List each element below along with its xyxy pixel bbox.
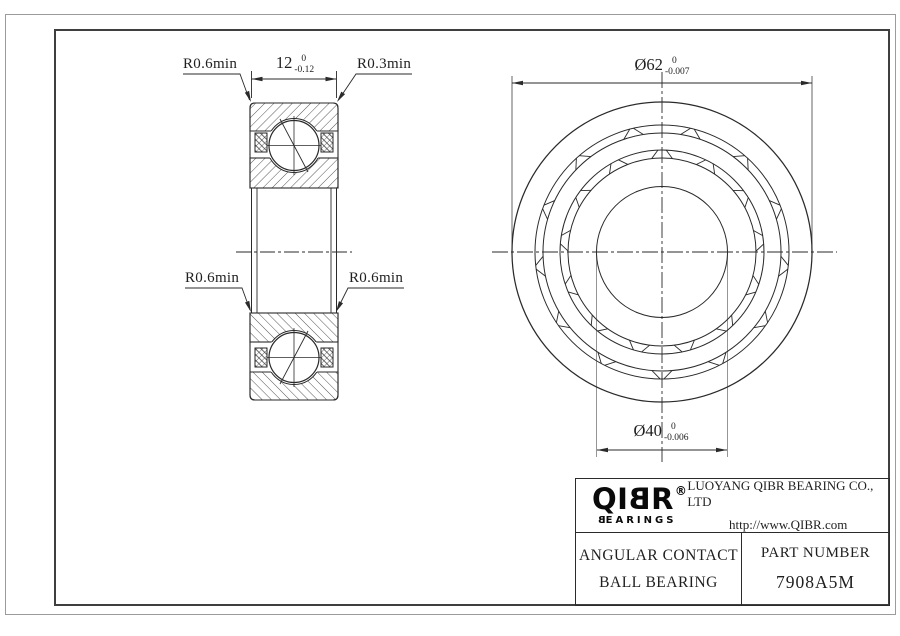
product-name-line2: BALL BEARING <box>599 574 718 592</box>
section-view <box>236 103 352 400</box>
part-number-value: 7908A5M <box>776 572 855 593</box>
title-block-header-row: QIBR® BEARINGS LUOYANG QIBR BEARING CO.,… <box>576 479 889 533</box>
bearing-drawing-sheet: R0.6min R0.3min R0.6min R0.6min 12 0 -0.… <box>0 0 900 636</box>
title-block: QIBR® BEARINGS LUOYANG QIBR BEARING CO.,… <box>575 478 890 606</box>
dim-text-width: 12 0 -0.12 <box>276 53 314 77</box>
qibr-logo: QIBR® BEARINGS <box>592 485 687 526</box>
dim-width-tolerance: 0 -0.12 <box>294 54 314 77</box>
cage-section-lower-right <box>321 348 333 367</box>
dim-od-nominal: Ø62 <box>635 55 663 75</box>
dim-bore-nominal: Ø40 <box>634 421 662 441</box>
fillet-label-mid-left: R0.6min <box>185 270 239 287</box>
dim-text-bore: Ø40 0 -0.006 <box>634 421 689 445</box>
dim-text-od: Ø62 0 -0.007 <box>635 55 690 79</box>
registered-mark: ® <box>675 484 688 498</box>
dim-od-tolerance: 0 -0.007 <box>665 56 690 79</box>
company-website: http://www.QIBR.com <box>729 517 847 533</box>
title-block-bottom-row: ANGULAR CONTACT BALL BEARING PART NUMBER… <box>576 533 889 605</box>
part-number-cell: PART NUMBER 7908A5M <box>741 533 889 605</box>
fillet-label-mid-right: R0.6min <box>349 270 403 287</box>
company-cell: LUOYANG QIBR BEARING CO., LTD http://www… <box>687 478 889 533</box>
bore-silhouette <box>252 188 337 313</box>
company-name: LUOYANG QIBR BEARING CO., LTD <box>687 478 889 510</box>
qibr-logo-subtitle: BEARINGS <box>595 516 687 526</box>
product-name-line1: ANGULAR CONTACT <box>579 547 738 565</box>
fillet-label-top-right: R0.3min <box>357 56 411 73</box>
dim-width-nominal: 12 <box>276 53 293 73</box>
section-upper <box>250 103 338 188</box>
part-number-label: PART NUMBER <box>761 545 870 562</box>
section-lower <box>250 313 338 400</box>
qibr-logo-word: QIBR® <box>592 485 687 514</box>
fillet-label-top-left: R0.6min <box>183 56 237 73</box>
cage-section-upper-left <box>255 133 267 152</box>
cage-section-upper-right <box>321 133 333 152</box>
product-name-cell: ANGULAR CONTACT BALL BEARING <box>576 533 741 605</box>
cage-section-lower-left <box>255 348 267 367</box>
dim-bore-tolerance: 0 -0.006 <box>664 422 689 445</box>
